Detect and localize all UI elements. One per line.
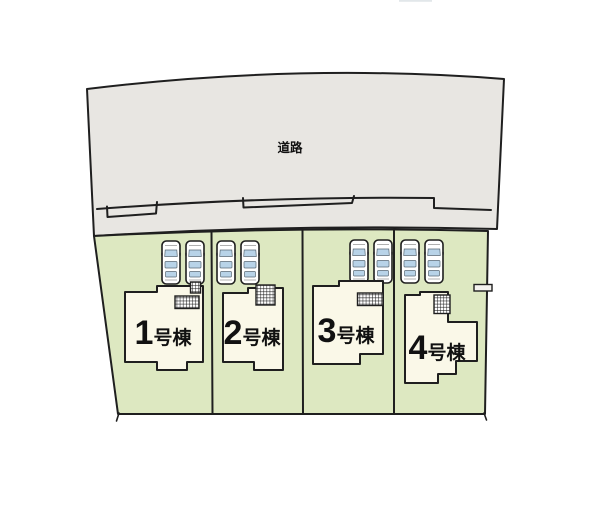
house-2-balcony-hatch — [256, 285, 275, 305]
lot-4-edge-marker — [474, 285, 492, 292]
car-icon — [424, 240, 444, 283]
road-label: 道路 — [277, 140, 303, 155]
car-icon — [185, 241, 205, 284]
house-1-porch-hatch — [191, 282, 201, 293]
house-3-balcony-hatch — [358, 293, 384, 306]
car-icon — [400, 240, 420, 283]
car-icon — [349, 240, 369, 283]
car-icon — [373, 240, 393, 283]
lot-divider-2-3 — [303, 230, 304, 414]
site-plan-canvas: 道路 1号棟 2号棟 3号棟 4号棟 — [0, 0, 600, 507]
car-icon — [240, 241, 260, 284]
car-icon — [216, 241, 236, 284]
site-plan-drawing: 道路 1号棟 2号棟 3号棟 4号棟 — [0, 0, 600, 507]
car-icon — [161, 241, 181, 284]
house-4-balcony-hatch — [434, 295, 450, 314]
scan-artifact — [399, 0, 432, 2]
house-1-balcony-hatch — [175, 296, 199, 309]
lot-divider-1-2 — [212, 232, 213, 414]
